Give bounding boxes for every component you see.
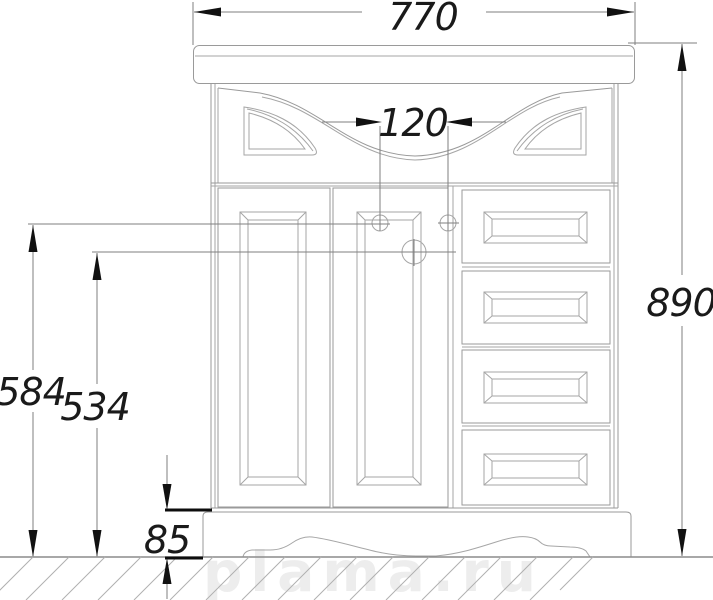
drawer-4 (462, 430, 610, 505)
dim-120-label: 120 (378, 101, 448, 145)
right-door (333, 188, 448, 507)
left-corner-ornament (244, 107, 316, 155)
drawer-stack (462, 190, 610, 505)
drawer-1 (462, 190, 610, 263)
dim-890-label: 890 (646, 281, 713, 325)
dim-534-label: 534 (60, 385, 130, 429)
dim-85-label: 85 (144, 518, 190, 562)
body-side-panels (211, 84, 618, 508)
left-door (218, 188, 330, 507)
vanity-technical-drawing: plama.ru (0, 0, 713, 600)
dim-584-label: 584 (0, 370, 66, 414)
dimension-plinth-height: 85 (144, 455, 212, 599)
watermark-text: plama.ru (203, 540, 544, 600)
countertop (194, 46, 635, 84)
drawing-canvas: plama.ru (0, 0, 713, 600)
drawer-2 (462, 271, 610, 344)
drawer-3 (462, 350, 610, 423)
dimension-lower-knob-height: 534 (60, 252, 456, 557)
right-corner-ornament (514, 107, 586, 155)
dimension-overall-height: 890 (628, 43, 713, 556)
handle-hole-marks (372, 215, 459, 266)
dim-770-label: 770 (388, 0, 458, 39)
dimension-upper-knob-height: 584 (0, 224, 390, 557)
dimension-top-width: 770 (193, 0, 635, 45)
